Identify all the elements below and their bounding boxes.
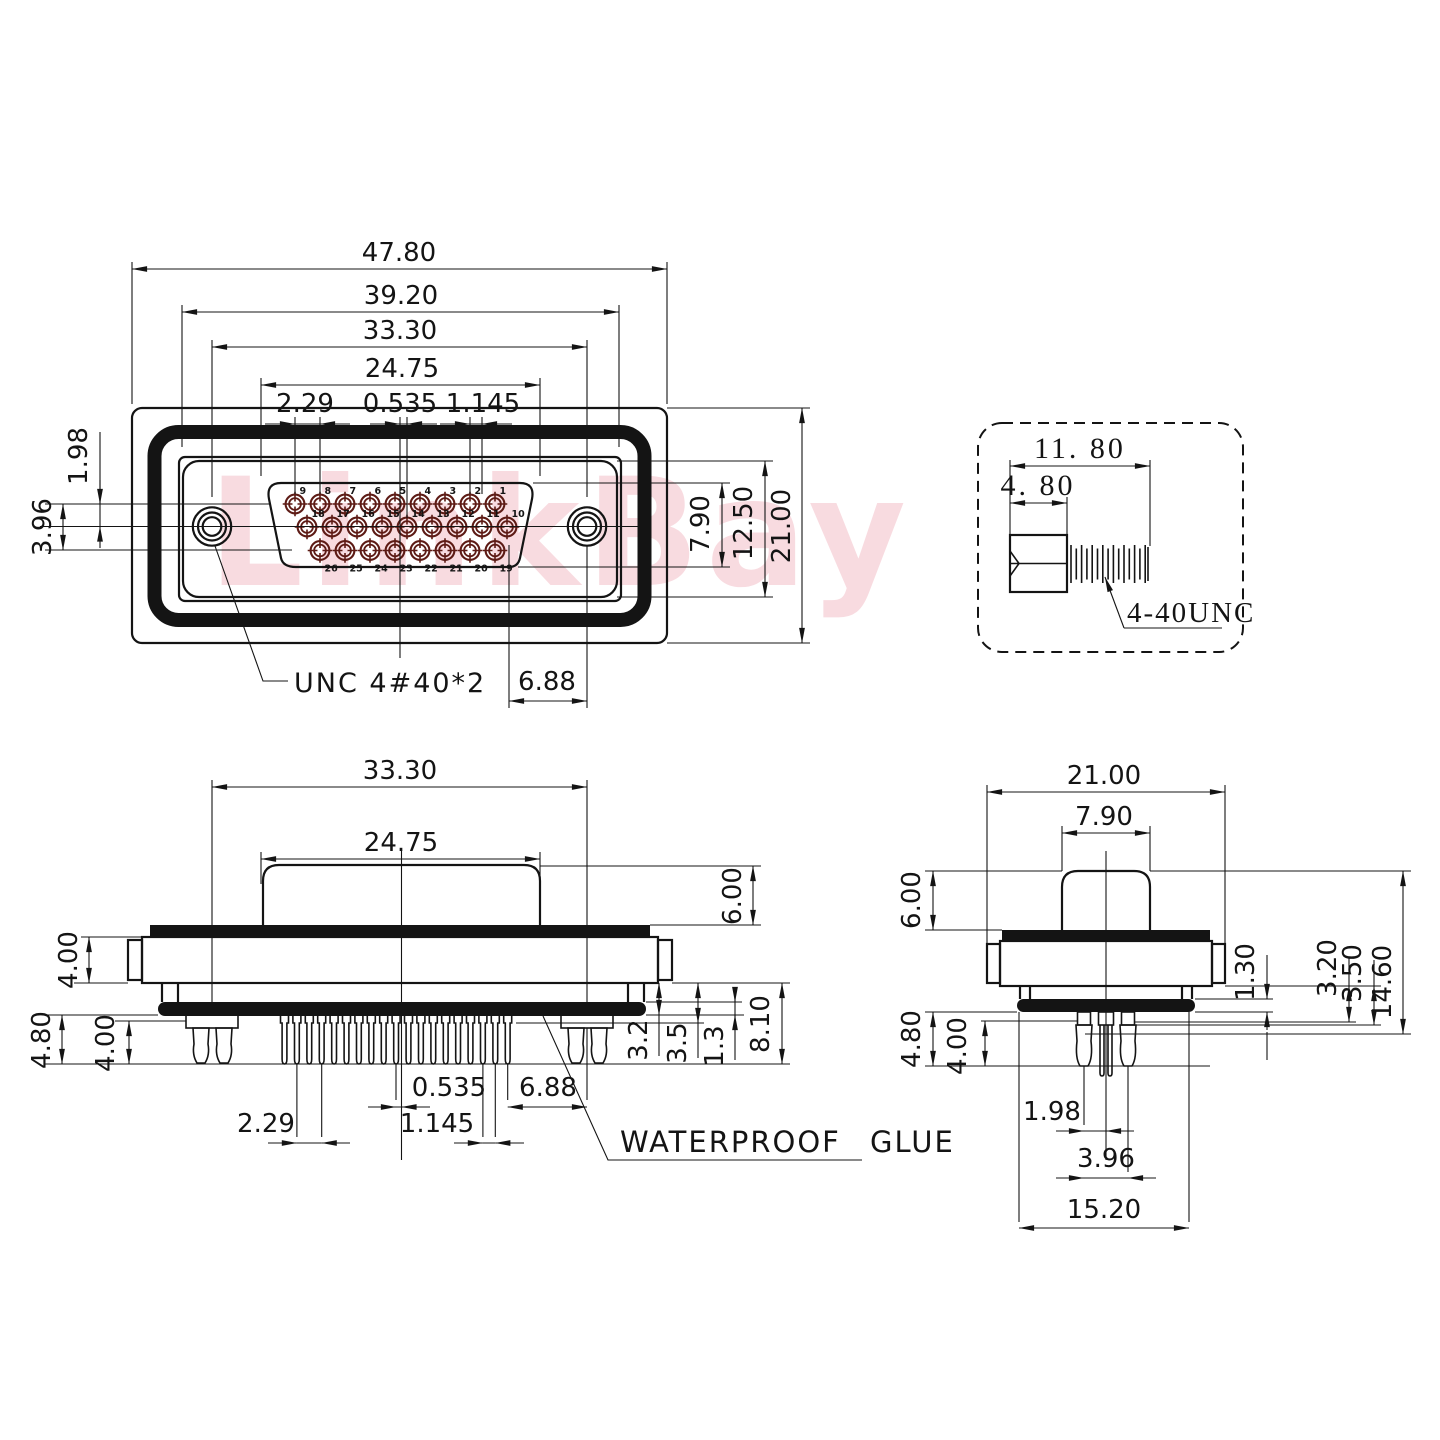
dim-front-insert-width: 24.75 <box>365 354 439 384</box>
side-extension-lines <box>45 780 862 1160</box>
pin-number: 17 <box>337 509 350 520</box>
solder-pin <box>504 1016 512 1064</box>
side-pin-tails <box>281 1016 512 1064</box>
side-gasket-bar <box>150 925 650 937</box>
pin-number: 18 <box>312 509 326 520</box>
rivet-prong <box>216 1028 232 1063</box>
pin-number: 23 <box>400 564 413 575</box>
dim-front-screw-span: 33.30 <box>363 316 437 346</box>
dim-front-total-width: 47.80 <box>362 238 436 268</box>
pin-number: 9 <box>300 486 307 497</box>
pin-number: 13 <box>437 509 450 520</box>
solder-pin <box>479 1016 487 1064</box>
dim-side-pin-pitch: 2.29 <box>237 1109 295 1139</box>
dim-side-screw-to-pin: 6.88 <box>519 1073 577 1103</box>
dim-end-rivet-length: 4.00 <box>943 1017 973 1075</box>
rivet-prong <box>193 1028 209 1063</box>
connector-drawing: LinkBay 98765432118171615141312111026252… <box>0 0 1440 1440</box>
solder-pin <box>343 1016 351 1064</box>
pin-number: 21 <box>450 564 463 575</box>
dim-end-pin-length: 4.80 <box>897 1010 927 1068</box>
dim-end-overall-height: 14.60 <box>1368 945 1398 1019</box>
rivet-prong <box>1076 1025 1092 1066</box>
dim-side-cap-height: 6.00 <box>718 867 748 925</box>
screw-detail-view: 11. 80 4. 80 4-40UNC <box>978 423 1255 652</box>
center-pin <box>1100 1025 1104 1076</box>
dim-end-cap-height: 6.00 <box>897 871 927 929</box>
drawing-canvas: LinkBay 98765432118171615141312111026252… <box>0 0 1440 1440</box>
dim-side-insert-width: 24.75 <box>364 828 438 858</box>
end-flange-ear-right <box>1212 944 1225 983</box>
solder-pin <box>442 1016 450 1064</box>
pin-number: 25 <box>350 564 363 575</box>
dim-end-pin-shoulder: 3.50 <box>1338 944 1368 1002</box>
dim-front-half-offset: 1.145 <box>446 389 520 419</box>
dim-side-rivet-length: 4.00 <box>91 1014 121 1072</box>
dim-side-screw-span: 33.30 <box>363 756 437 786</box>
dim-side-below-flange: 8.10 <box>746 995 776 1053</box>
dim-front-pin-pitch: 2.29 <box>276 389 334 419</box>
solder-pin <box>330 1016 338 1064</box>
pin-number: 16 <box>362 509 376 520</box>
solder-pin <box>293 1016 301 1064</box>
end-view: 21.00 7.90 6.00 4.80 4.00 1.30 3.20 3.50… <box>897 761 1411 1228</box>
side-body-walls <box>162 983 644 1002</box>
dim-side-pin-length: 4.80 <box>27 1011 57 1069</box>
pin-number: 26 <box>325 564 339 575</box>
solder-pin <box>392 1016 400 1064</box>
dim-side-center-offset: 0.535 <box>412 1073 486 1103</box>
dim-side-pin-shoulder: 3.5 <box>663 1022 693 1063</box>
solder-pin <box>305 1016 313 1064</box>
screw-head <box>1010 535 1067 592</box>
dim-front-shell-width: 39.20 <box>364 281 438 311</box>
solder-pin <box>405 1016 413 1064</box>
center-pin <box>1108 1025 1112 1076</box>
rivet-prong <box>1120 1025 1136 1066</box>
dim-side-body-step: 3.2 <box>624 1019 654 1060</box>
dim-front-shell-height: 12.50 <box>729 486 759 560</box>
side-flange-ear-right <box>658 940 672 980</box>
side-glue-label: WATERPROOF GLUE <box>620 1125 955 1159</box>
pin-head <box>1078 1012 1091 1025</box>
side-flange <box>142 937 658 983</box>
pin-number: 12 <box>462 509 475 520</box>
detail-thread-label: 4-40UNC <box>1127 597 1255 629</box>
pin-number: 7 <box>350 486 357 497</box>
pin-number: 2 <box>475 486 482 497</box>
solder-pin <box>467 1016 475 1064</box>
front-thread-label: UNC 4#40*2 <box>294 668 486 699</box>
solder-pin <box>281 1016 289 1064</box>
solder-pin <box>429 1016 437 1064</box>
dim-front-row-pitch: 1.98 <box>64 427 94 485</box>
pin-number: 20 <box>475 564 489 575</box>
dim-end-body-width: 15.20 <box>1067 1195 1141 1225</box>
solder-pin <box>367 1016 375 1064</box>
solder-pin <box>454 1016 462 1064</box>
dim-front-screw-to-pin: 6.88 <box>518 667 576 697</box>
dim-end-insert-width: 7.90 <box>1075 802 1133 832</box>
pin-number: 3 <box>450 486 457 497</box>
dim-detail-total-length: 11. 80 <box>1034 432 1126 465</box>
pin-number: 1 <box>500 486 507 497</box>
screw-thread <box>1067 545 1148 583</box>
dim-side-half-offset: 1.145 <box>400 1109 474 1139</box>
dim-end-row-pitch: 1.98 <box>1023 1097 1081 1127</box>
pin-number: 14 <box>412 509 426 520</box>
pin-number: 22 <box>425 564 438 575</box>
dim-detail-head-length: 4. 80 <box>1001 469 1076 502</box>
pin-number: 15 <box>387 509 400 520</box>
solder-pin <box>491 1016 499 1064</box>
side-view: 33.30 24.75 6.00 4.00 4.80 4.00 3.2 3.5 … <box>27 756 955 1160</box>
end-flange-ear-left <box>987 944 1000 983</box>
dim-end-rows-span: 3.96 <box>1077 1144 1135 1174</box>
dim-front-total-height: 21.00 <box>767 489 797 563</box>
pin-number: 24 <box>375 564 389 575</box>
solder-pin <box>355 1016 363 1064</box>
solder-pin <box>380 1016 388 1064</box>
pin-number: 19 <box>500 564 513 575</box>
rivet-prong <box>568 1028 584 1063</box>
dim-end-total-width: 21.00 <box>1067 761 1141 791</box>
rivet-prong <box>591 1028 607 1063</box>
pin-head <box>1122 1012 1135 1025</box>
dim-front-insert-height: 7.90 <box>686 495 716 553</box>
pin-number: 8 <box>325 486 332 497</box>
side-flange-ear-left <box>128 940 142 980</box>
dim-front-center-offset: 0.535 <box>363 389 437 419</box>
solder-pin <box>318 1016 326 1064</box>
pin-number: 10 <box>512 509 526 520</box>
pin-number: 11 <box>487 509 500 520</box>
solder-pin <box>417 1016 425 1064</box>
pin-number: 6 <box>375 486 382 497</box>
dim-side-glue-thickness: 1.3 <box>700 1025 730 1066</box>
dim-end-glue-thickness: 1.30 <box>1231 943 1261 1001</box>
pin-number: 4 <box>425 486 432 497</box>
dim-side-flange-thickness: 4.00 <box>54 931 84 989</box>
dim-front-rows-span: 3.96 <box>28 498 58 556</box>
